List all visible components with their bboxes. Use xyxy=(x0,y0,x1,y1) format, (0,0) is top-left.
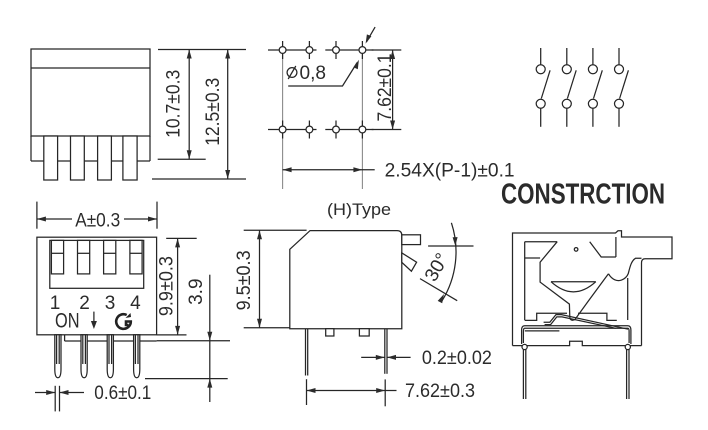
svg-text:ON: ON xyxy=(55,310,80,333)
svg-text:A±0.3: A±0.3 xyxy=(75,210,120,231)
svg-text:3.9: 3.9 xyxy=(186,278,207,304)
svg-text:7.62±0.3: 7.62±0.3 xyxy=(405,381,475,402)
svg-text:0.2±0.02: 0.2±0.02 xyxy=(422,348,492,369)
svg-text:0,8: 0,8 xyxy=(300,63,327,84)
svg-text:12.5±0.3: 12.5±0.3 xyxy=(203,78,224,146)
svg-text:10.7±0.3: 10.7±0.3 xyxy=(164,70,185,138)
svg-text:3: 3 xyxy=(105,293,116,314)
svg-text:2: 2 xyxy=(79,293,90,314)
svg-text:4: 4 xyxy=(130,293,141,314)
svg-text:9.5±0.3: 9.5±0.3 xyxy=(234,250,255,310)
svg-text:0.6±0.1: 0.6±0.1 xyxy=(94,383,151,404)
svg-text:2.54X(P-1)±0.1: 2.54X(P-1)±0.1 xyxy=(385,161,515,182)
svg-text:7.62±0.1: 7.62±0.1 xyxy=(375,54,396,122)
svg-text:(H)Type: (H)Type xyxy=(327,200,391,219)
svg-text:CONSTRCTION: CONSTRCTION xyxy=(501,179,665,211)
svg-text:9.9±0.3: 9.9±0.3 xyxy=(157,256,178,316)
